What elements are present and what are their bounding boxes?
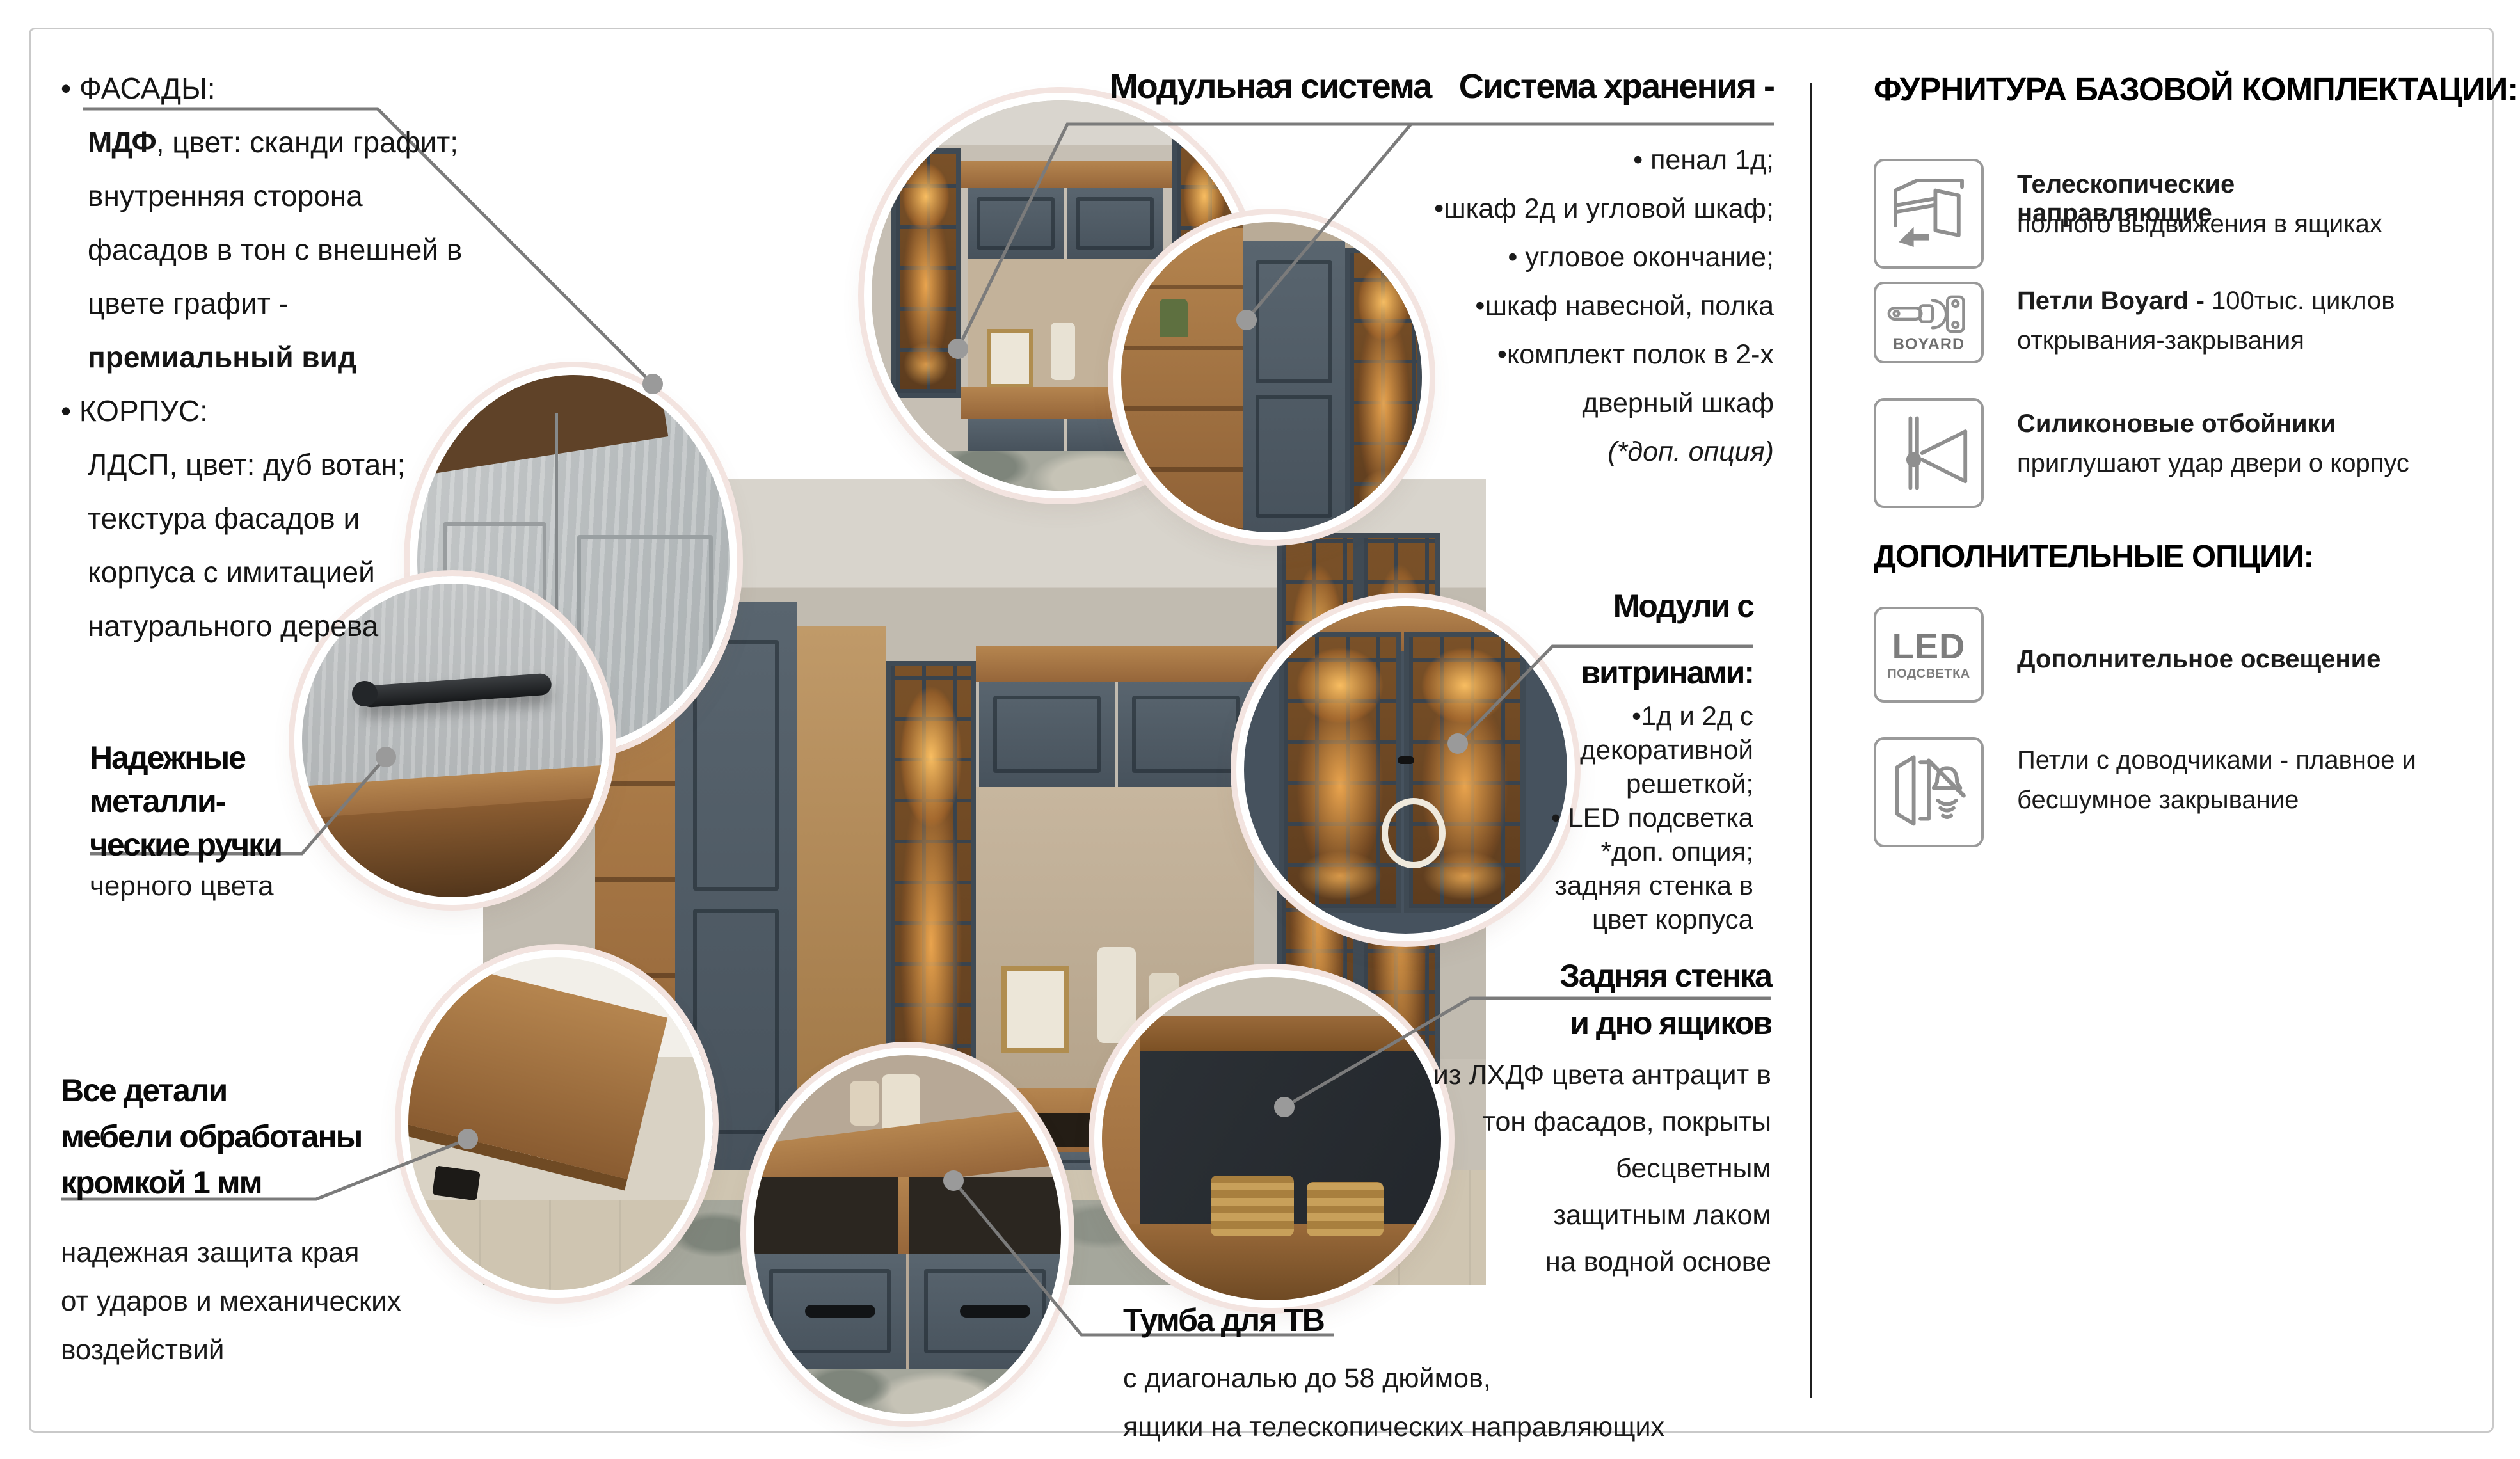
label-tv-sub: с диагональю до 58 дюймов, ящики на теле…: [1123, 1354, 1664, 1451]
sidebar-led-text: Дополнительное освещение: [2017, 645, 2427, 674]
storage-note: (*доп. опция): [1364, 427, 1774, 476]
label-vitrines-1: Модули с: [1395, 587, 1753, 625]
storage-item: •комплект полок в 2-х: [1364, 330, 1774, 379]
storage-items-list: • пенал 1д; •шкаф 2д и угловой шкаф; • у…: [1364, 136, 1774, 476]
label-edges: Все детали мебели обработаны кромкой 1 м…: [61, 1067, 362, 1206]
callout-photo-edge: [401, 950, 713, 1298]
label-backwall-sub: из ЛХДФ цвета антрацит в тон фасадов, по…: [1375, 1052, 1771, 1286]
sidebar-item3-desc: приглушают удар двери о корпус: [2017, 449, 2427, 478]
drawer-slide-icon: [1874, 159, 1984, 269]
left-specs-block: • ФАСАДЫ: МДФ, цвет: сканди графит; внут…: [61, 61, 509, 653]
sidebar-header-extra-options: ДОПОЛНИТЕЛЬНЫЕ ОПЦИИ:: [1874, 539, 2313, 575]
specs-line: корпуса с имитацией: [61, 545, 509, 599]
storage-item: • пенал 1д;: [1364, 136, 1774, 184]
sidebar-soft-line2: бесшумное закрывание: [2017, 786, 2427, 815]
storage-item: дверный шкаф: [1364, 379, 1774, 427]
sidebar-item2-title: Петли Boyard - 100тыс. циклов: [2017, 287, 2427, 315]
callout-photo-tv-stand: [746, 1048, 1069, 1421]
label-storage-system: Система хранения -: [1377, 67, 1774, 106]
specs-line: ЛДСП, цвет: дуб вотан;: [61, 438, 509, 491]
storage-item: •шкаф 2д и угловой шкаф;: [1364, 184, 1774, 233]
storage-item: •шкаф навесной, полка: [1364, 282, 1774, 330]
label-edges-sub: надежная защита края от ударов и механич…: [61, 1229, 401, 1375]
soft-close-icon: [1874, 737, 1984, 847]
sidebar-item1-desc: полного выдвижения в ящиках: [2017, 210, 2427, 239]
label-handles-sub: черного цвета: [90, 870, 274, 902]
sidebar-item3-title: Силиконовые отбойники: [2017, 410, 2427, 438]
specs-mdf-line: МДФ, цвет: сканди графит;: [61, 115, 509, 169]
upper-cabinet-left: [979, 682, 1115, 787]
led-icon: LED ПОДСВЕТКА: [1874, 607, 1984, 703]
top-beam: [976, 646, 1280, 682]
specs-line: фасадов в тон с внешней в: [61, 223, 509, 276]
sidebar-item2-desc: открывания-закрывания: [2017, 326, 2427, 355]
label-tv-stand: Тумба для ТВ: [1123, 1302, 1324, 1339]
storage-item: • угловое окончание;: [1364, 233, 1774, 282]
vitrines-items-list: •1д и 2д с декоративной решеткой; • LED …: [1395, 699, 1753, 936]
specs-line: внутренняя сторона: [61, 169, 509, 223]
specs-line: цвете графит -: [61, 276, 509, 330]
furniture-infographic: • ФАСАДЫ: МДФ, цвет: сканди графит; внут…: [0, 0, 2520, 1459]
specs-facades-title: • ФАСАДЫ:: [61, 61, 509, 115]
label-backwall-1: Задняя стенка: [1387, 957, 1771, 994]
upper-cabinet-right: [1118, 682, 1254, 787]
boyard-hinge-icon: BOYARD: [1874, 282, 1984, 363]
boyard-badge: BOYARD: [1893, 335, 1965, 354]
label-backwall-2: и дно ящиков: [1387, 1005, 1771, 1042]
label-vitrines-2: витринами:: [1395, 654, 1753, 691]
specs-korpus-title: • КОРПУС:: [61, 384, 509, 438]
specs-premium-line: премиальный вид: [61, 330, 509, 384]
sidebar-soft-line1: Петли с доводчиками - плавное и: [2017, 746, 2427, 775]
door-bumper-icon: [1874, 398, 1984, 508]
label-handles: Надежные металли- ческие ручки: [90, 736, 282, 866]
sidebar-header-base-hardware: ФУРНИТУРА БАЗОВОЙ КОМПЛЕКТАЦИИ:: [1874, 70, 2517, 108]
specs-line: натурального дерева: [61, 599, 509, 653]
sidebar-divider: [1810, 83, 1812, 1398]
specs-line: текстура фасадов и: [61, 491, 509, 545]
